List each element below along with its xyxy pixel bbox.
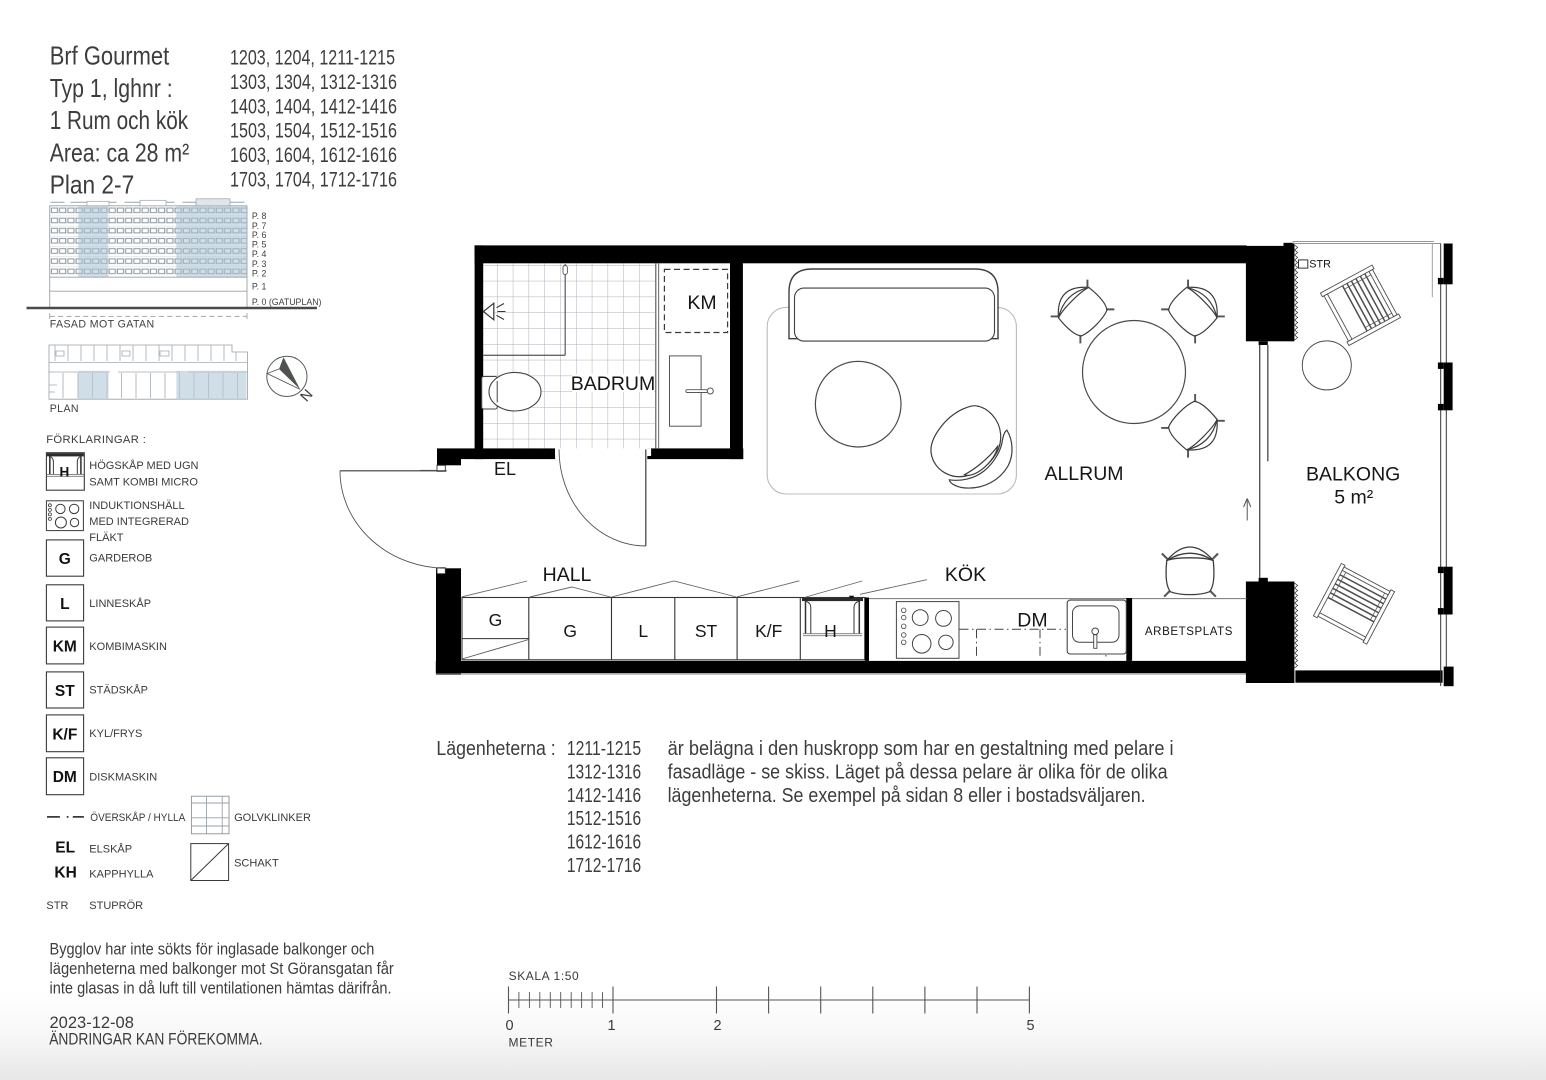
svg-text:1203, 1204, 1211-1215: 1203, 1204, 1211-1215: [230, 47, 395, 70]
svg-text:1412-1416: 1412-1416: [567, 785, 641, 807]
svg-text:HÖGSKÅP MED UGN: HÖGSKÅP MED UGN: [89, 459, 198, 472]
svg-text:1211-1215: 1211-1215: [567, 738, 641, 760]
svg-text:HALL: HALL: [543, 564, 592, 586]
svg-text:FLÄKT: FLÄKT: [89, 532, 124, 544]
svg-text:KH: KH: [54, 865, 76, 882]
svg-text:Brf Gourmet: Brf Gourmet: [50, 41, 170, 71]
svg-text:Lägenheterna :: Lägenheterna :: [436, 738, 555, 760]
svg-text:K/F: K/F: [52, 726, 77, 743]
svg-text:1503, 1504, 1512-1516: 1503, 1504, 1512-1516: [230, 120, 397, 143]
svg-text:Area: ca 28 m²: Area: ca 28 m²: [50, 137, 190, 167]
svg-text:H: H: [824, 621, 837, 641]
svg-text:KM: KM: [687, 292, 716, 314]
svg-text:1 Rum och kök: 1 Rum och kök: [50, 105, 189, 135]
svg-text:ST: ST: [695, 621, 718, 641]
svg-text:G: G: [59, 551, 71, 568]
svg-text:ARBETSPLATS: ARBETSPLATS: [1145, 626, 1233, 638]
svg-text:INDUKTIONSHÄLL: INDUKTIONSHÄLL: [89, 500, 184, 512]
svg-text:STUPRÖR: STUPRÖR: [89, 900, 143, 912]
svg-text:MED INTEGRERAD: MED INTEGRERAD: [89, 516, 189, 528]
svg-text:LINNESKÅP: LINNESKÅP: [89, 597, 151, 610]
svg-text:KYL/FRYS: KYL/FRYS: [89, 728, 142, 740]
svg-text:L: L: [638, 621, 648, 641]
svg-text:DM: DM: [1017, 609, 1047, 631]
svg-text:SCHAKT: SCHAKT: [234, 858, 279, 870]
svg-text:1712-1716: 1712-1716: [567, 855, 641, 877]
svg-text:1403, 1404, 1412-1416: 1403, 1404, 1412-1416: [230, 95, 397, 118]
svg-text:EL: EL: [55, 839, 75, 856]
svg-text:SKALA 1:50: SKALA 1:50: [509, 969, 580, 983]
svg-text:GOLVKLINKER: GOLVKLINKER: [234, 812, 311, 824]
svg-text:ALLRUM: ALLRUM: [1044, 463, 1123, 485]
svg-text:ST: ST: [55, 683, 75, 700]
svg-text:lägenheterna med balkonger mot: lägenheterna med balkonger mot St Görans…: [50, 960, 395, 978]
svg-text:EL: EL: [494, 459, 516, 479]
svg-text:L: L: [60, 596, 69, 613]
svg-text:KOMBIMASKIN: KOMBIMASKIN: [89, 641, 167, 653]
svg-text:ELSKÅP: ELSKÅP: [89, 842, 132, 855]
svg-text:lägenheterna. Se exempel på si: lägenheterna. Se exempel på sidan 8 elle…: [668, 785, 1146, 807]
svg-text:DM: DM: [53, 769, 77, 786]
svg-text:är belägna i den huskropp som: är belägna i den huskropp som har en ges…: [668, 738, 1174, 760]
svg-text:BALKONG: BALKONG: [1306, 463, 1400, 485]
svg-text:STR: STR: [1309, 259, 1331, 271]
svg-text:DISKMASKIN: DISKMASKIN: [89, 772, 157, 784]
svg-text:5 m²: 5 m²: [1334, 487, 1374, 509]
svg-text:1703, 1704, 1712-1716: 1703, 1704, 1712-1716: [230, 169, 397, 192]
svg-text:FASAD MOT GATAN: FASAD MOT GATAN: [50, 319, 155, 331]
svg-text:Bygglov har inte sökts för ing: Bygglov har inte sökts för inglasade bal…: [50, 940, 375, 958]
svg-text:P. 4: P. 4: [252, 249, 267, 259]
svg-text:1603, 1604, 1612-1616: 1603, 1604, 1612-1616: [230, 144, 397, 167]
svg-text:G: G: [563, 621, 577, 641]
svg-text:1303, 1304, 1312-1316: 1303, 1304, 1312-1316: [230, 71, 397, 94]
svg-text:H: H: [60, 465, 70, 480]
svg-text:KM: KM: [53, 639, 77, 656]
svg-text:P. 1: P. 1: [252, 281, 267, 291]
svg-text:K/F: K/F: [755, 621, 782, 641]
svg-text:fasadläge - se skiss. Läget på: fasadläge - se skiss. Läget på dessa pel…: [668, 761, 1169, 783]
svg-text:ÖVERSKÅP / HYLLA: ÖVERSKÅP / HYLLA: [90, 811, 186, 824]
svg-text:KAPPHYLLA: KAPPHYLLA: [89, 869, 154, 881]
svg-text:PLAN: PLAN: [50, 403, 79, 415]
svg-text:P. 2: P. 2: [252, 268, 267, 278]
svg-text:FÖRKLARINGAR :: FÖRKLARINGAR :: [46, 434, 146, 446]
svg-text:P. 8: P. 8: [252, 211, 267, 221]
svg-text:Typ 1, lghnr :: Typ 1, lghnr :: [50, 73, 173, 103]
svg-text:G: G: [489, 610, 503, 630]
svg-text:P. 0 (GATUPLAN): P. 0 (GATUPLAN): [252, 297, 322, 307]
svg-text:BADRUM: BADRUM: [571, 373, 656, 395]
svg-text:SAMT KOMBI MICRO: SAMT KOMBI MICRO: [89, 477, 198, 489]
svg-text:1312-1316: 1312-1316: [567, 761, 641, 783]
svg-text:STR: STR: [46, 900, 68, 912]
svg-text:STÄDSKÅP: STÄDSKÅP: [89, 684, 148, 697]
svg-text:KÖK: KÖK: [945, 564, 986, 586]
svg-text:Plan 2-7: Plan 2-7: [50, 170, 135, 200]
svg-text:1612-1616: 1612-1616: [567, 832, 641, 854]
svg-text:1512-1516: 1512-1516: [567, 808, 641, 830]
svg-text:GARDEROB: GARDEROB: [89, 553, 152, 565]
